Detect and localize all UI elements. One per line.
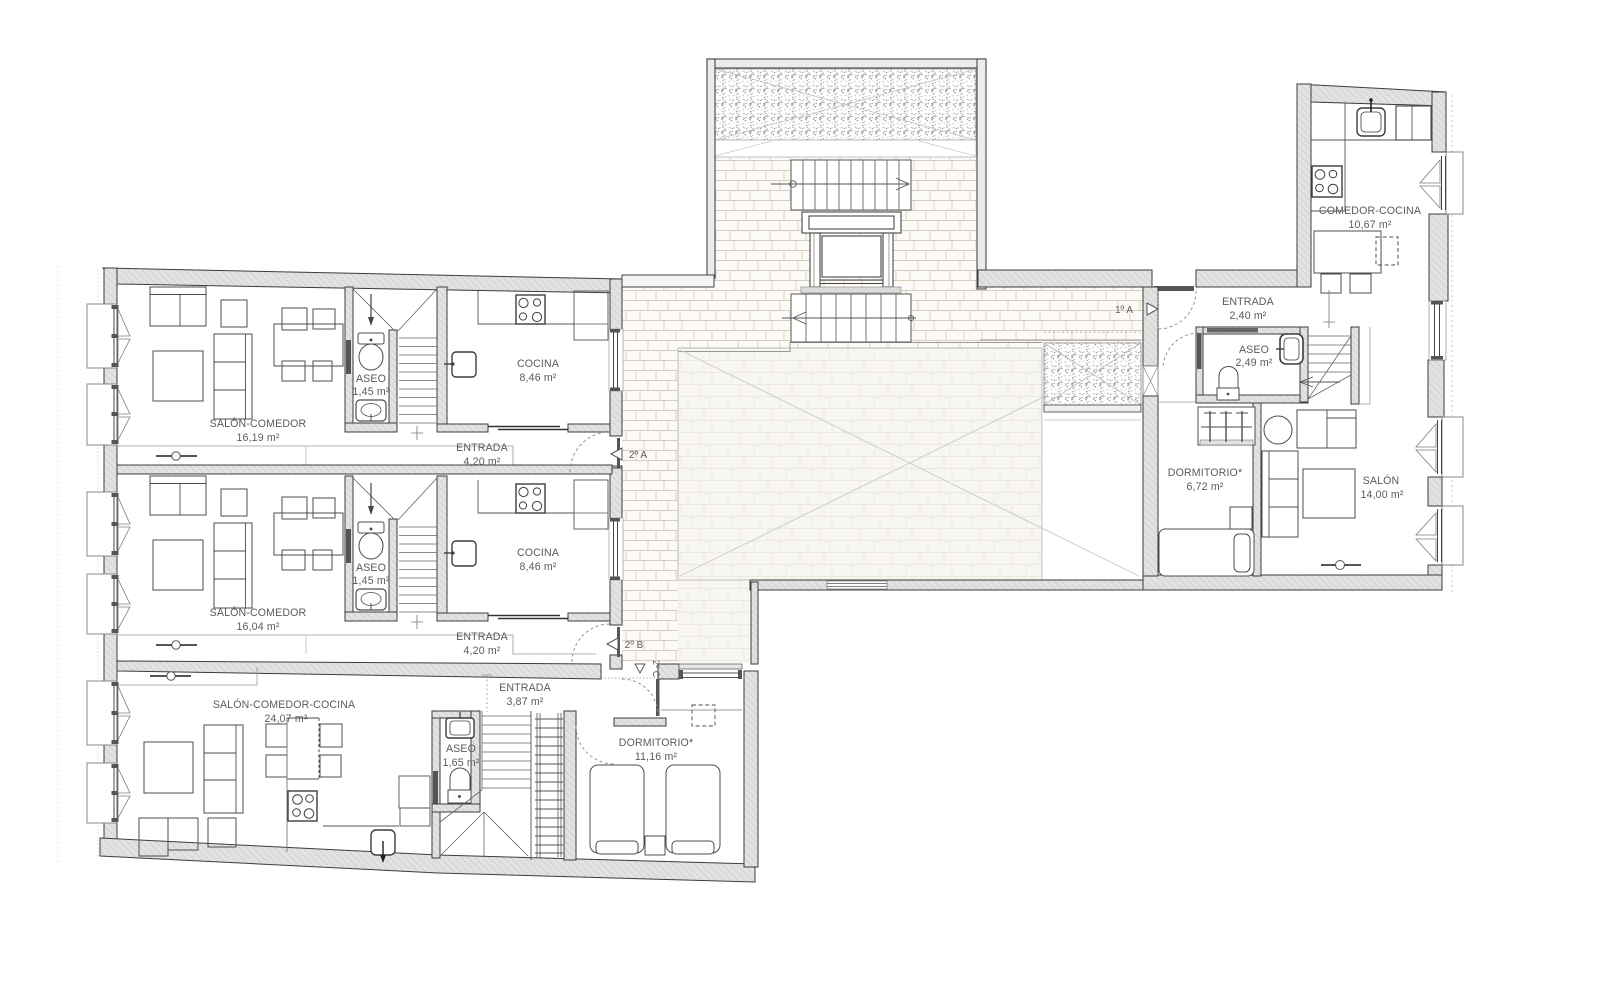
svg-text:COCINA: COCINA xyxy=(517,358,560,370)
svg-text:1,45 m²: 1,45 m² xyxy=(353,575,390,587)
svg-text:16,19 m²: 16,19 m² xyxy=(236,432,279,444)
svg-text:1º A: 1º A xyxy=(1115,305,1133,316)
svg-text:2,49 m²: 2,49 m² xyxy=(1236,357,1273,369)
svg-text:6,72 m²: 6,72 m² xyxy=(1187,481,1224,493)
svg-text:SALÓN-COMEDOR-COCINA: SALÓN-COMEDOR-COCINA xyxy=(213,698,356,711)
svg-text:8,46 m²: 8,46 m² xyxy=(520,561,557,573)
svg-text:10,67 m²: 10,67 m² xyxy=(1348,219,1391,231)
svg-text:14,00 m²: 14,00 m² xyxy=(1360,489,1403,501)
svg-text:ENTRADA: ENTRADA xyxy=(499,682,551,694)
svg-text:8,46 m²: 8,46 m² xyxy=(520,372,557,384)
svg-text:2º A: 2º A xyxy=(629,450,647,461)
svg-text:ASEO: ASEO xyxy=(356,373,386,385)
svg-text:2º C: 2º C xyxy=(651,660,661,678)
svg-text:ASEO: ASEO xyxy=(446,743,476,755)
svg-text:SALÓN-COMEDOR: SALÓN-COMEDOR xyxy=(210,606,307,619)
svg-text:4,20 m²: 4,20 m² xyxy=(464,645,501,657)
svg-text:COCINA: COCINA xyxy=(517,547,560,559)
svg-text:24,07 m²: 24,07 m² xyxy=(264,713,307,725)
svg-text:DORMITORIO*: DORMITORIO* xyxy=(1168,467,1242,479)
svg-text:DORMITORIO*: DORMITORIO* xyxy=(619,737,693,749)
svg-text:2,40 m²: 2,40 m² xyxy=(1230,310,1267,322)
svg-text:16,04 m²: 16,04 m² xyxy=(236,621,279,633)
svg-text:ASEO: ASEO xyxy=(356,562,386,574)
svg-text:SALÓN-COMEDOR: SALÓN-COMEDOR xyxy=(210,417,307,430)
svg-text:11,16 m²: 11,16 m² xyxy=(635,751,678,763)
svg-text:ENTRADA: ENTRADA xyxy=(456,631,508,643)
svg-text:ENTRADA: ENTRADA xyxy=(1222,296,1274,308)
svg-text:ENTRADA: ENTRADA xyxy=(456,442,508,454)
svg-text:3,87 m²: 3,87 m² xyxy=(507,696,544,708)
svg-text:SALÓN: SALÓN xyxy=(1363,474,1400,487)
svg-text:ASEO: ASEO xyxy=(1239,344,1269,356)
svg-text:1,45 m²: 1,45 m² xyxy=(353,386,390,398)
svg-text:2º B: 2º B xyxy=(625,640,644,651)
svg-text:4,20 m²: 4,20 m² xyxy=(464,456,501,468)
svg-text:1,65 m²: 1,65 m² xyxy=(443,757,480,769)
svg-text:COMEDOR-COCINA: COMEDOR-COCINA xyxy=(1319,205,1422,217)
